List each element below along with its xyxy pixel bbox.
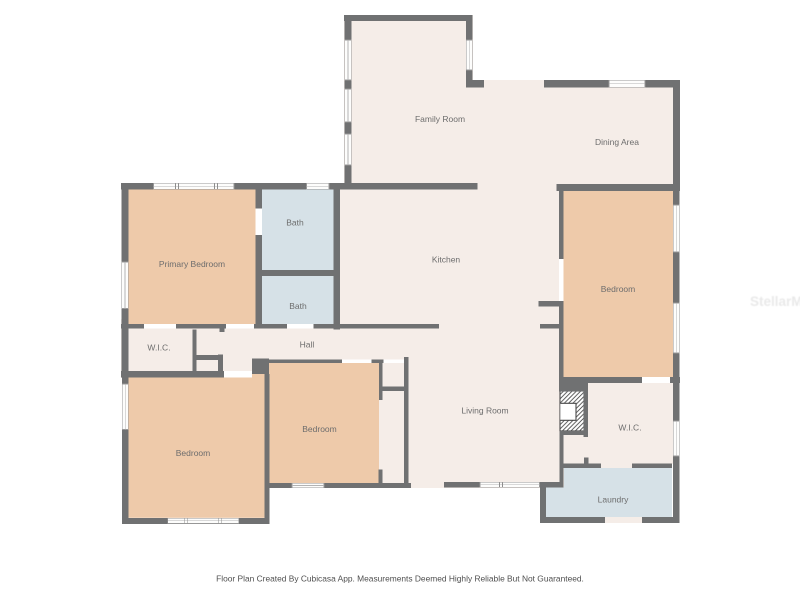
- svg-text:Living Room: Living Room: [461, 406, 508, 416]
- svg-text:Bedroom: Bedroom: [302, 424, 337, 434]
- svg-text:Bedroom: Bedroom: [601, 284, 636, 294]
- svg-text:Hall: Hall: [300, 340, 315, 350]
- svg-text:Kitchen: Kitchen: [432, 255, 461, 265]
- svg-text:Laundry: Laundry: [598, 495, 629, 505]
- svg-text:StellarMLS: StellarMLS: [750, 294, 800, 309]
- svg-text:Floor Plan Created By Cubicasa: Floor Plan Created By Cubicasa App. Meas…: [216, 574, 584, 584]
- svg-text:Primary Bedroom: Primary Bedroom: [159, 259, 225, 269]
- svg-text:W.I.C.: W.I.C.: [618, 423, 641, 433]
- svg-text:Bedroom: Bedroom: [176, 448, 211, 458]
- svg-text:Family Room: Family Room: [415, 114, 465, 124]
- svg-text:Dining Area: Dining Area: [595, 137, 639, 147]
- svg-text:W.I.C.: W.I.C.: [147, 343, 170, 353]
- svg-text:Bath: Bath: [289, 301, 307, 311]
- svg-text:Bath: Bath: [286, 218, 304, 228]
